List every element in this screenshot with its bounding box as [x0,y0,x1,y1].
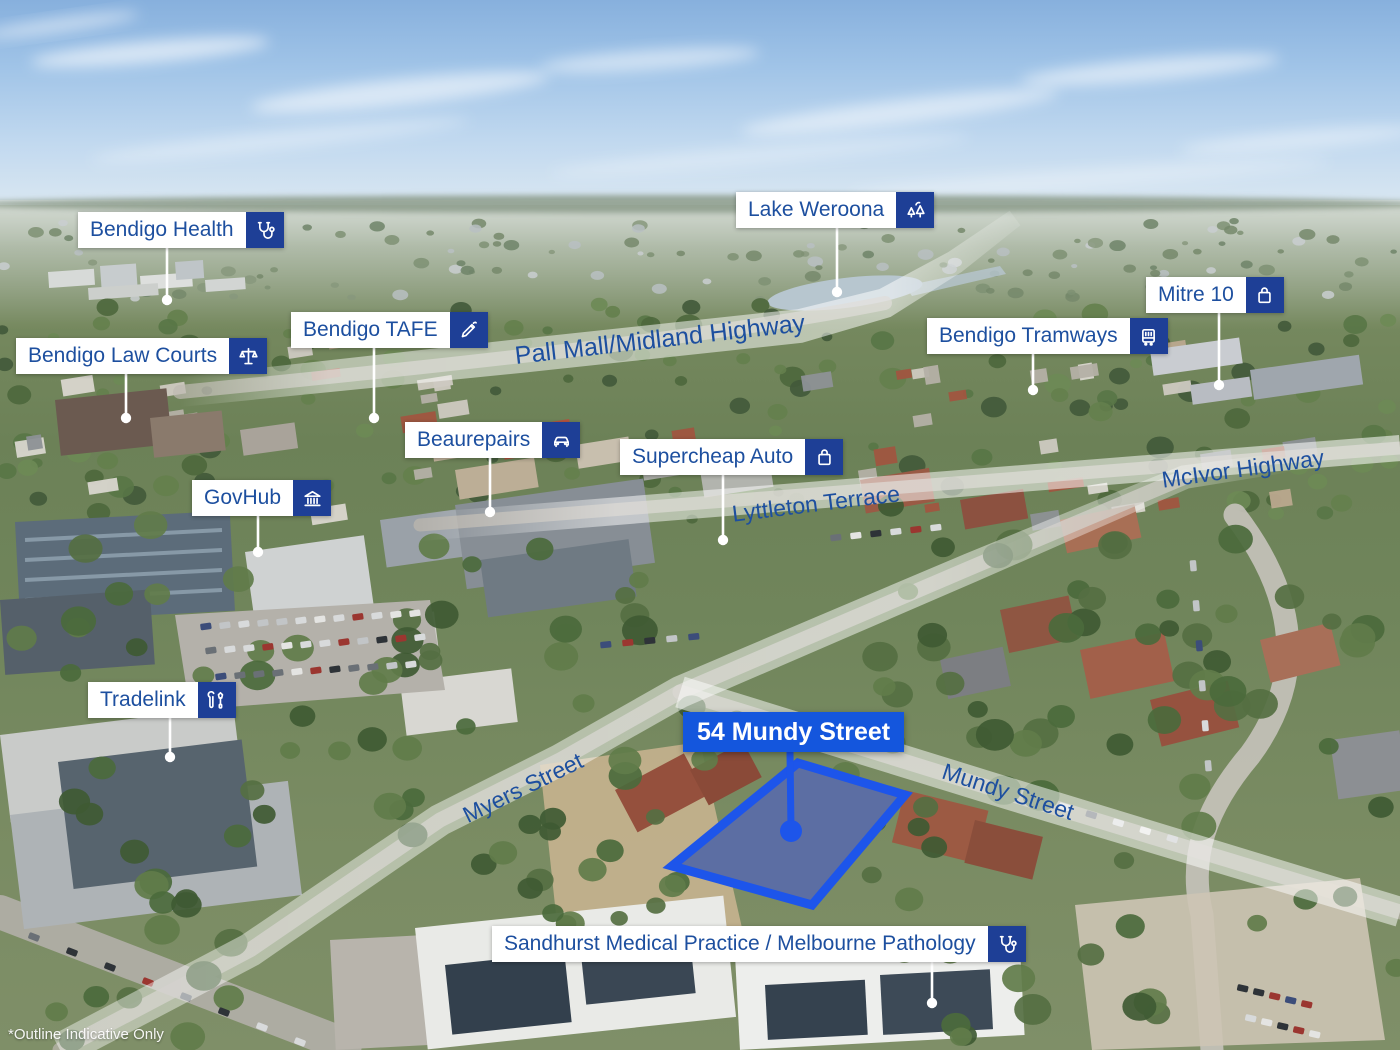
disclaimer-note: *Outline Indicative Only [8,1026,164,1043]
aerial-photo-background [0,0,1400,1050]
aerial-location-map: Bendigo HealthLake WeroonaMitre 10Bendig… [0,0,1400,1050]
